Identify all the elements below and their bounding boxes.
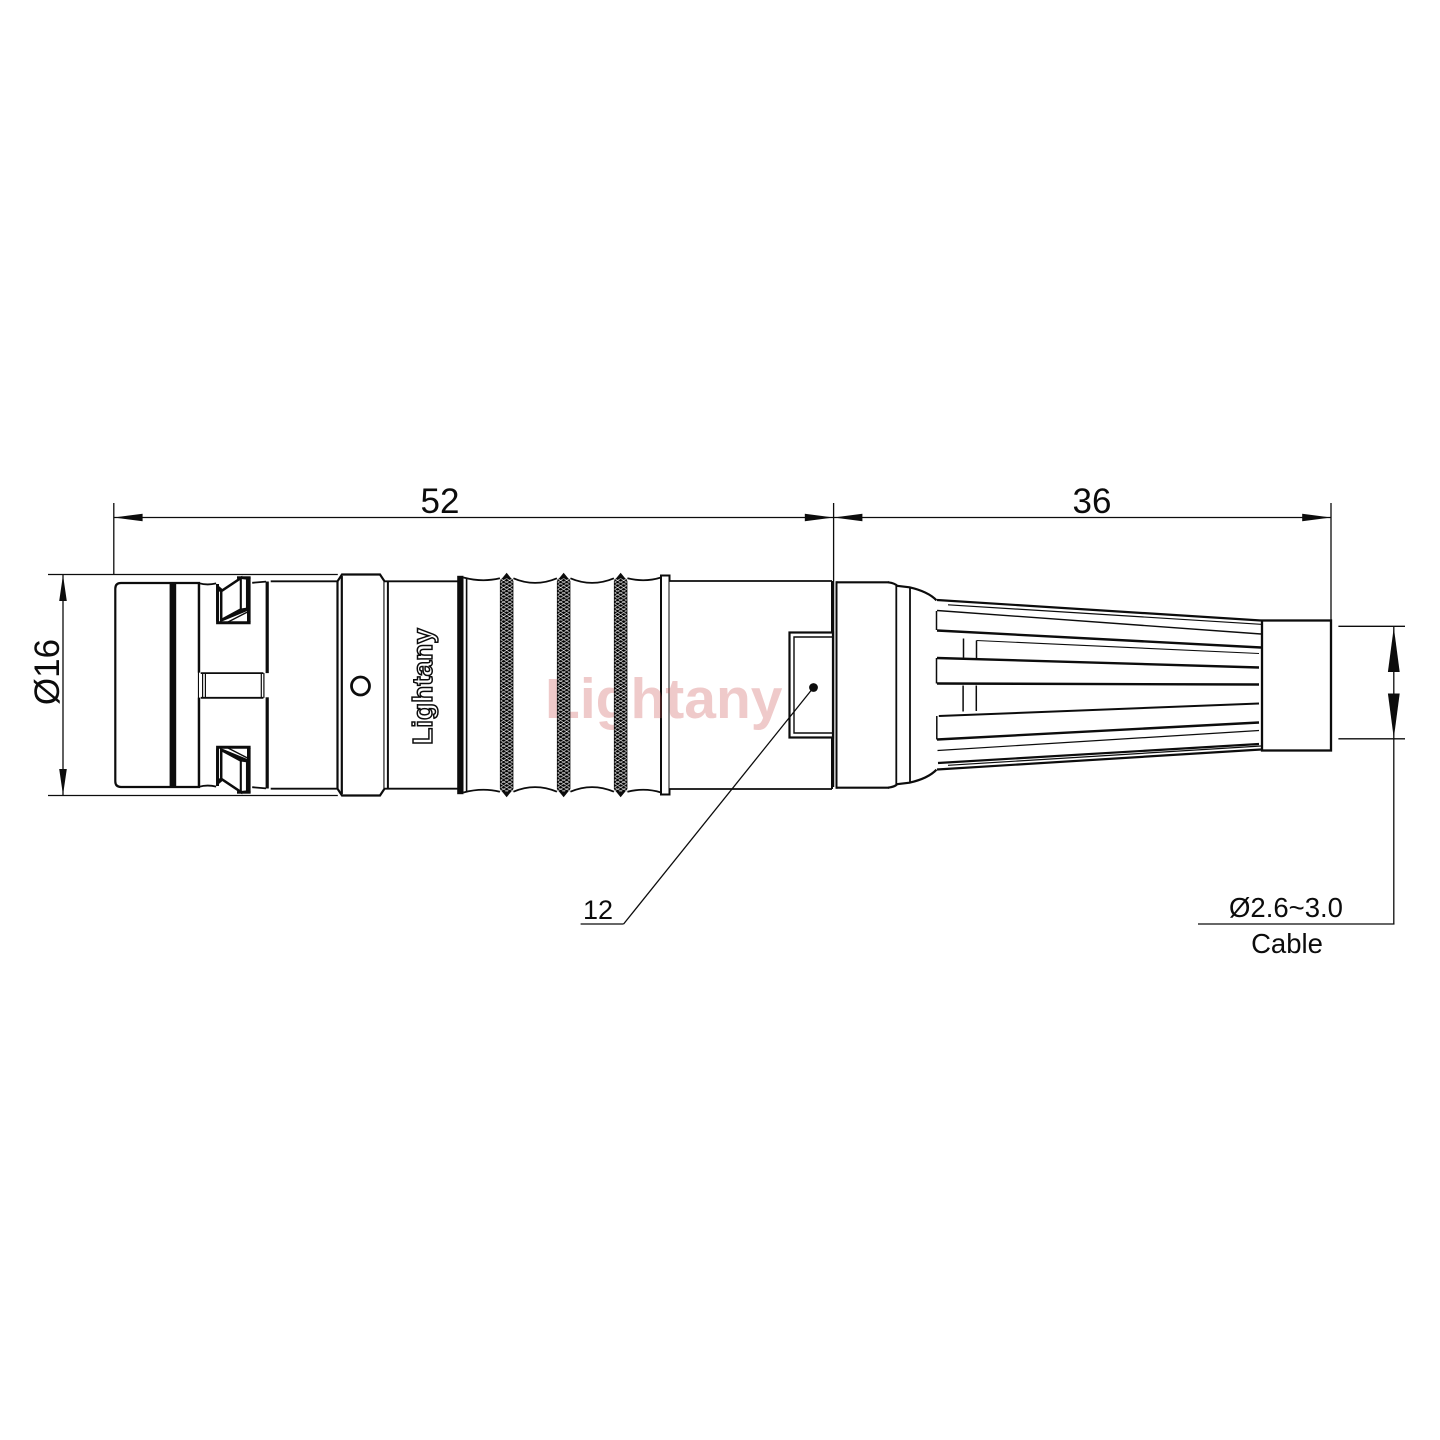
svg-text:Cable: Cable [1251,928,1323,959]
svg-text:Ø2.6~3.0: Ø2.6~3.0 [1229,892,1343,923]
svg-text:12: 12 [583,895,613,925]
svg-text:36: 36 [1073,482,1112,521]
svg-text:Ø16: Ø16 [28,639,67,705]
svg-text:52: 52 [421,482,460,521]
svg-text:Lightany: Lightany [407,628,438,745]
svg-text:Lightany: Lightany [545,667,783,731]
